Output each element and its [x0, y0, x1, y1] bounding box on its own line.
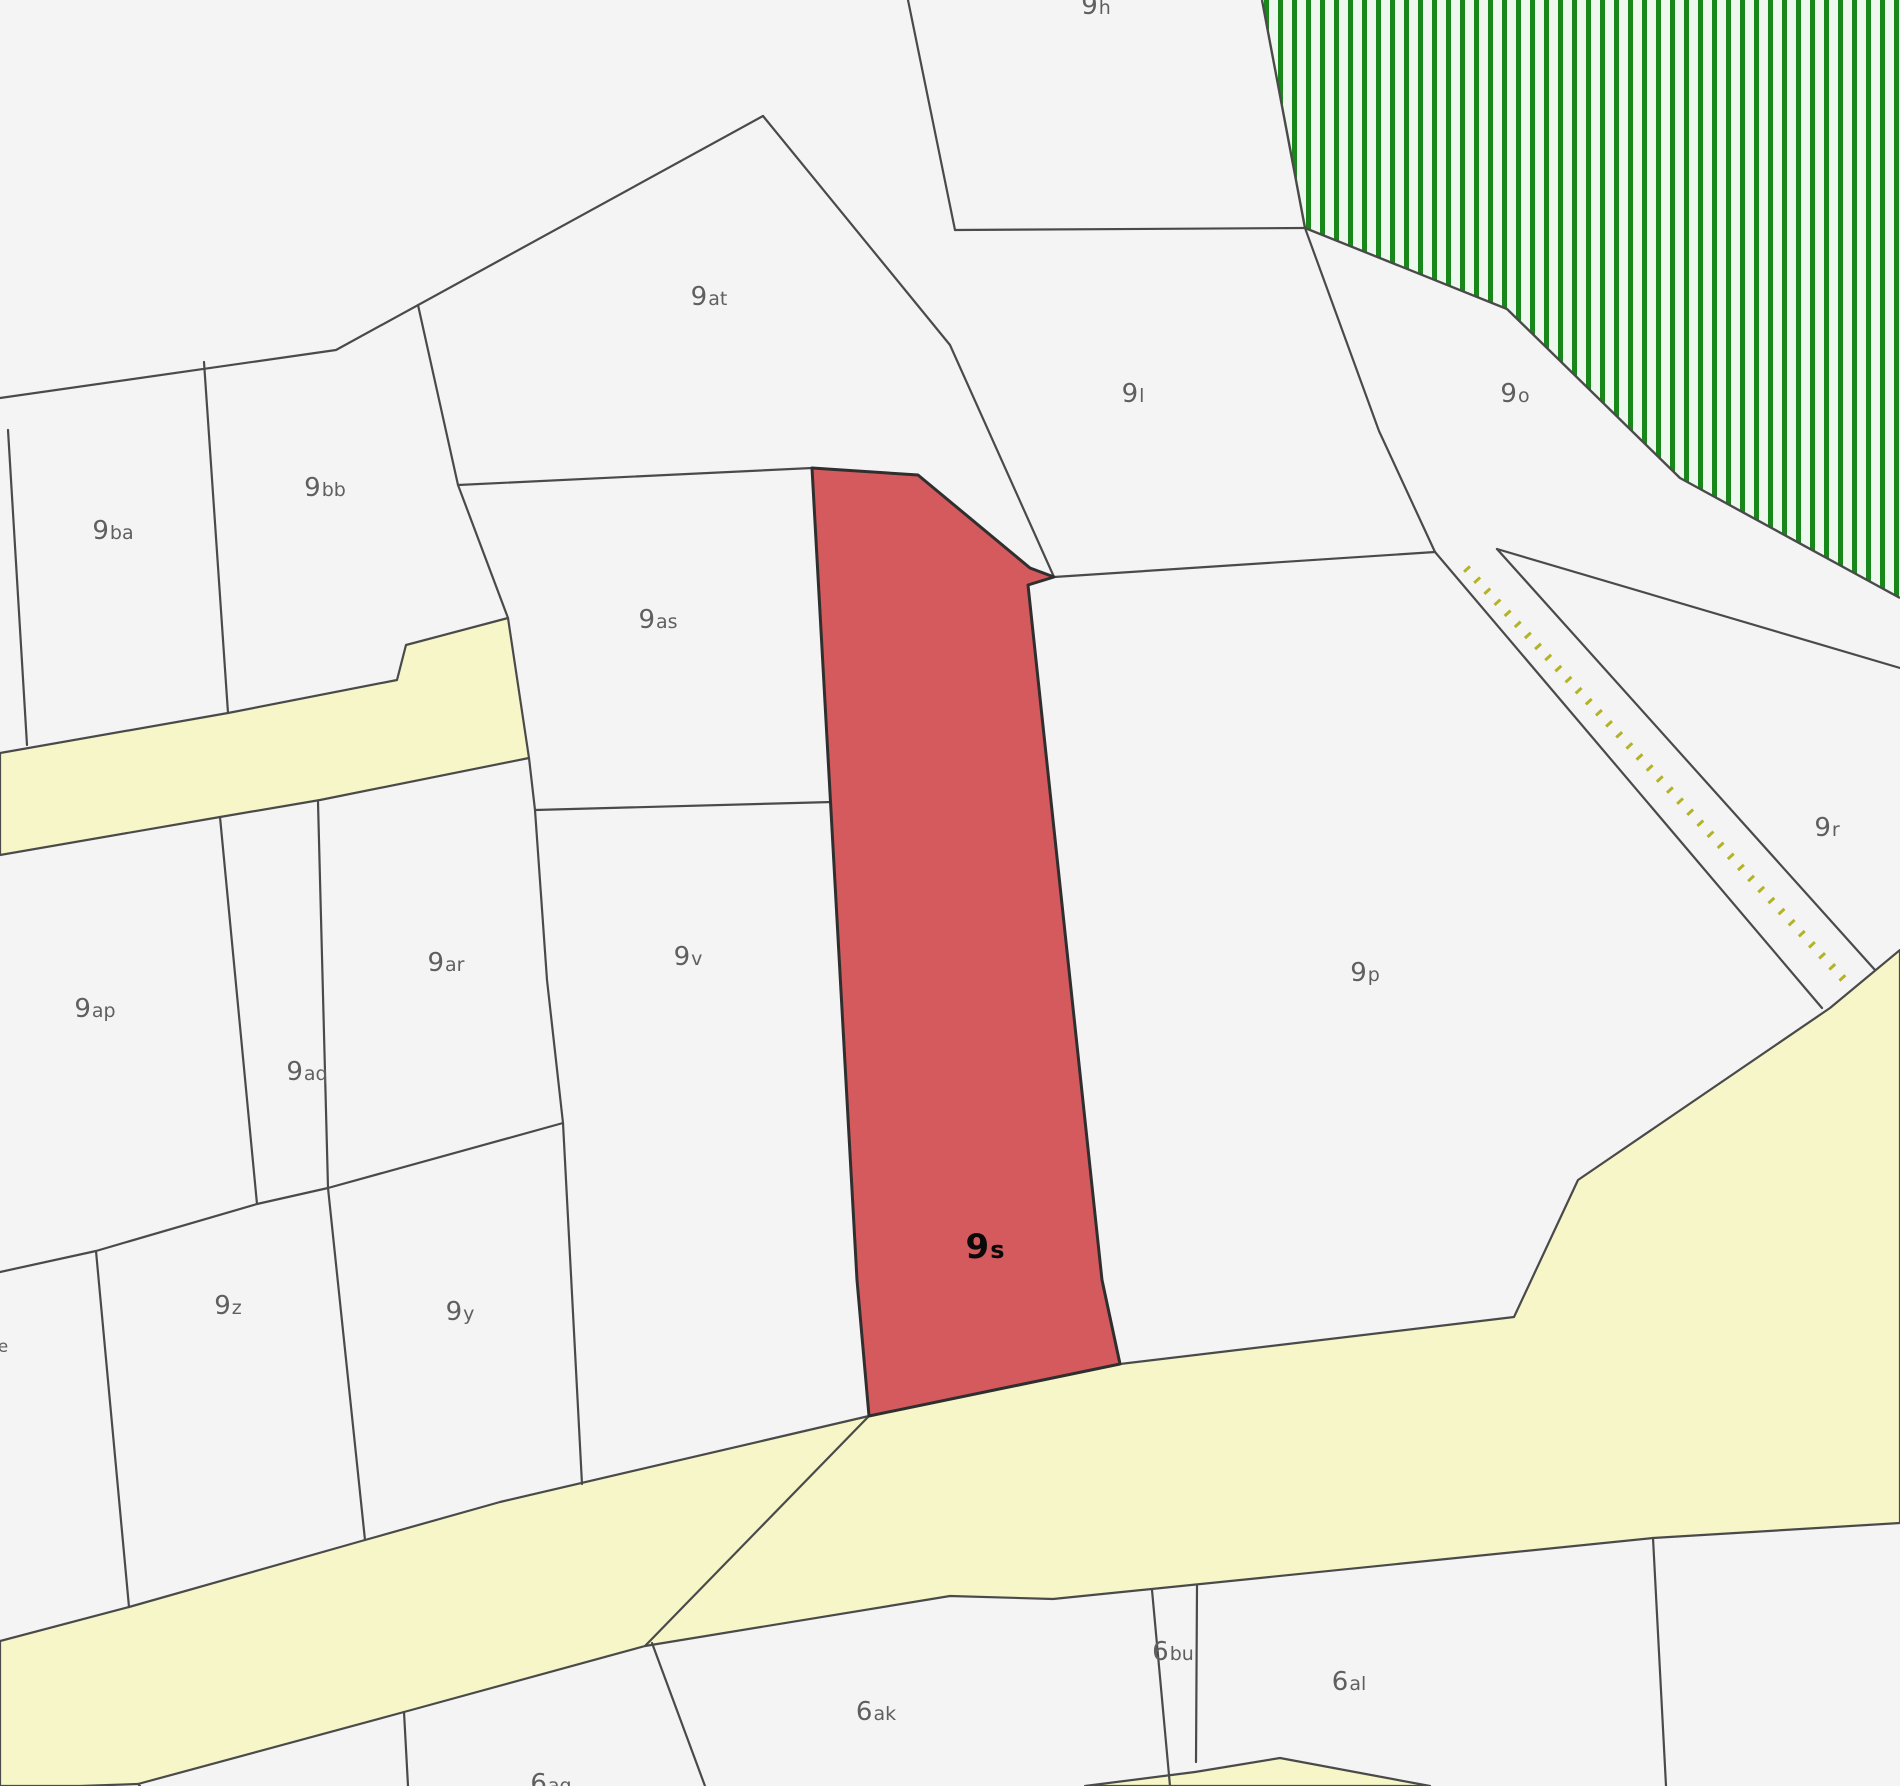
parcel-label-e-partial: e — [0, 1337, 8, 1357]
parcel-label-9h: 9h — [1081, 0, 1111, 21]
cadastral-map: 9h9at9l9o9bb9ba9as9r9ar9v9p9ap9aq9s9z9ye… — [0, 0, 1900, 1786]
map-viewport: 9h9at9l9o9bb9ba9as9r9ar9v9p9ap9aq9s9z9ye… — [0, 0, 1900, 1786]
boundary-6bu-east — [1196, 1586, 1197, 1762]
